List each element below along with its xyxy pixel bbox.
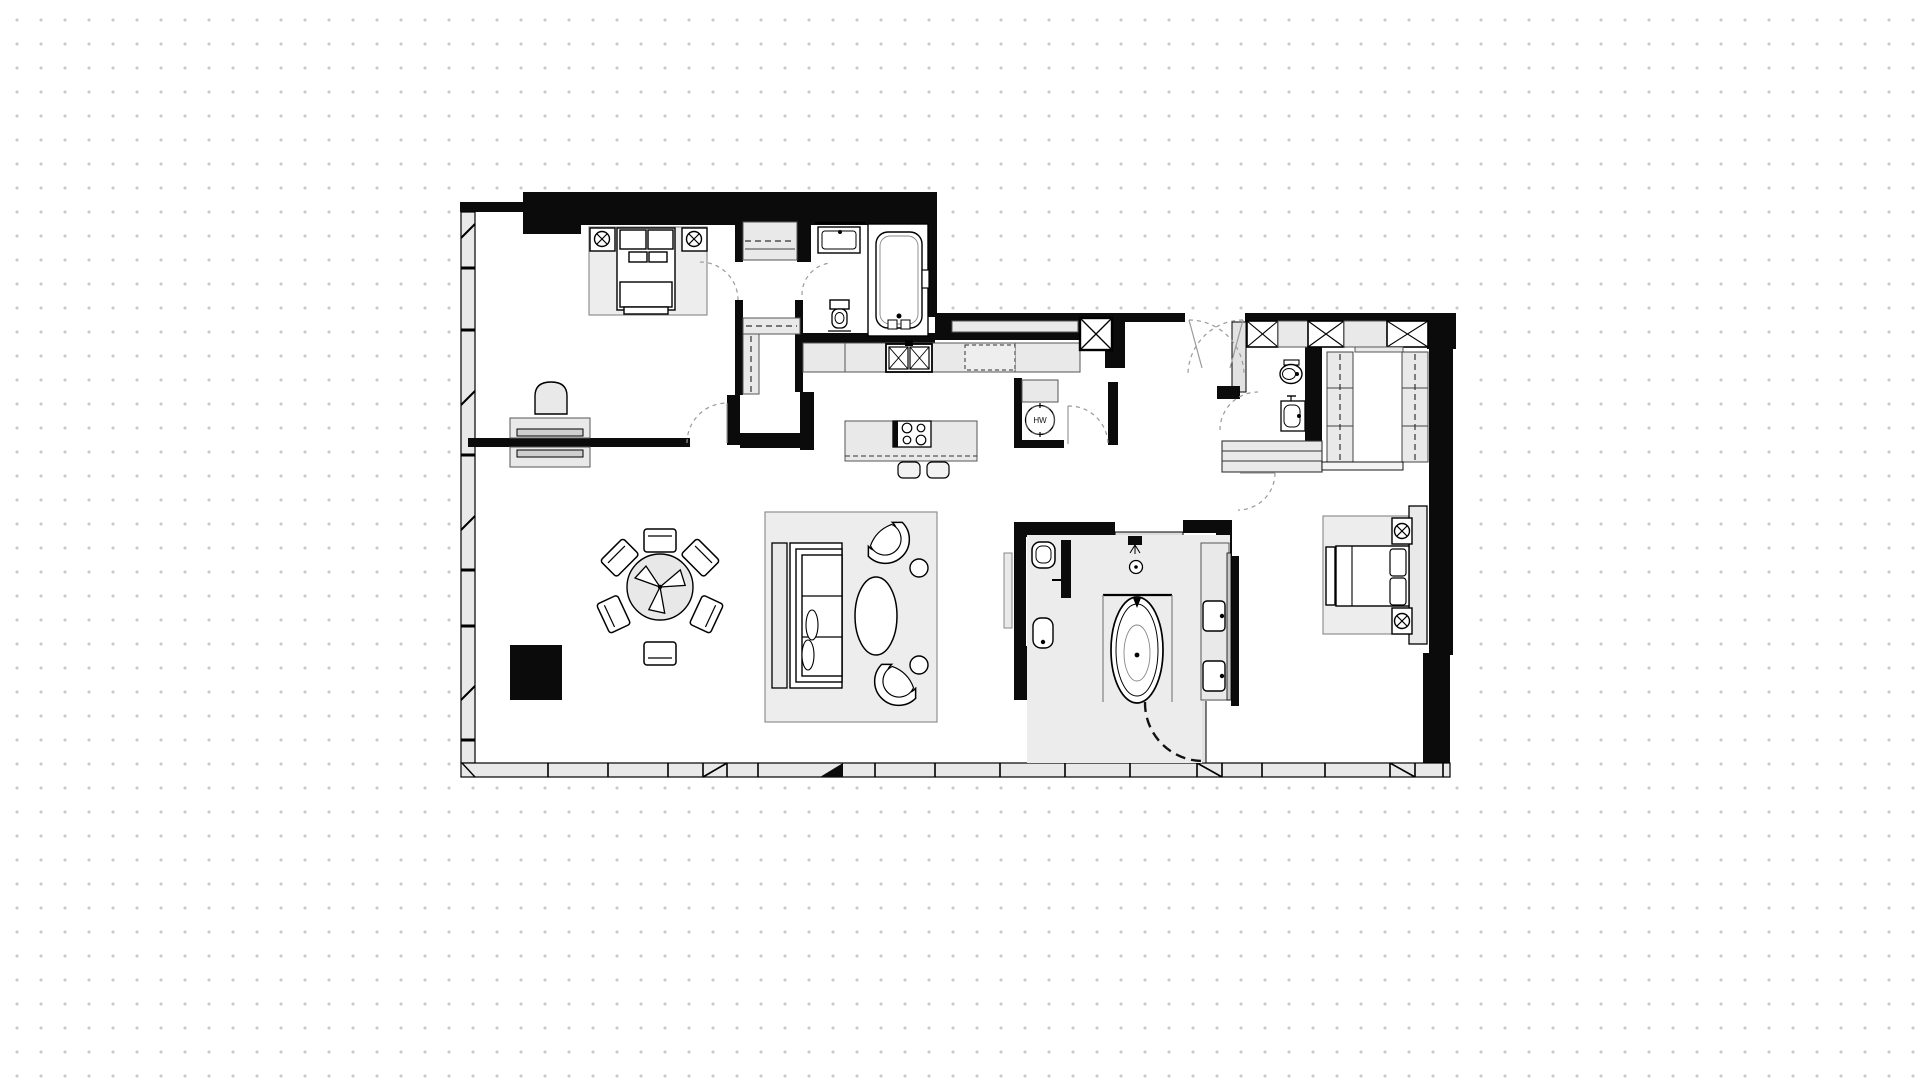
hall-cabinet (1222, 441, 1322, 472)
master-bathroom (1027, 535, 1231, 763)
side-table (910, 559, 928, 577)
service-shaft (1080, 318, 1112, 350)
bathtub (868, 224, 929, 336)
entry-storage-row (1247, 321, 1428, 347)
upper-cabinets (952, 321, 1078, 332)
powder-sink (1281, 396, 1305, 431)
wall-niche-shelf (1004, 553, 1012, 628)
desk-chair (535, 382, 567, 414)
coffee-table (855, 577, 897, 655)
toilet (1032, 542, 1055, 568)
dining-chair (644, 529, 676, 552)
hot-water-label: HW (1033, 416, 1047, 425)
stool (927, 462, 949, 478)
bidet (1033, 618, 1053, 648)
closet-shelf (1355, 347, 1403, 352)
fireplace-block (510, 645, 562, 700)
reach-in-closet (743, 222, 797, 260)
living-set (765, 512, 937, 722)
double-vanity (1201, 543, 1231, 700)
left-window-wall (461, 212, 475, 763)
wardrobe-column-left (1327, 352, 1353, 462)
freestanding-tub (1111, 597, 1163, 703)
bed-1 (617, 228, 675, 314)
counter-run (803, 343, 1080, 372)
bath-floor-lower (1027, 700, 1202, 763)
bedroom-2 (1323, 506, 1427, 644)
dishwasher (965, 345, 1015, 370)
sofa (790, 543, 842, 688)
cooktop (893, 421, 931, 447)
bed-2 (1326, 546, 1409, 606)
toilet-partition (1061, 540, 1071, 598)
media-console (772, 543, 787, 688)
lamp-icon (687, 232, 702, 247)
mirror (1227, 553, 1231, 700)
wardrobe-column-right (1402, 352, 1428, 462)
dining-chair (644, 642, 676, 665)
side-table (910, 656, 928, 674)
closet-base-trim (1322, 462, 1403, 470)
lamp-icon (1395, 614, 1410, 629)
kitchen-double-sink (886, 340, 932, 372)
bottom-window-wall (461, 763, 1450, 777)
faucet-icon (905, 340, 913, 346)
vanity-sink (818, 227, 860, 253)
floor-plan-drawing: HW (0, 0, 1920, 1078)
floor-plan-canvas: HW (0, 0, 1920, 1078)
stool (898, 462, 920, 478)
wall-niche (922, 270, 929, 288)
lamp-icon (1395, 524, 1410, 539)
lamp-icon (595, 232, 610, 247)
